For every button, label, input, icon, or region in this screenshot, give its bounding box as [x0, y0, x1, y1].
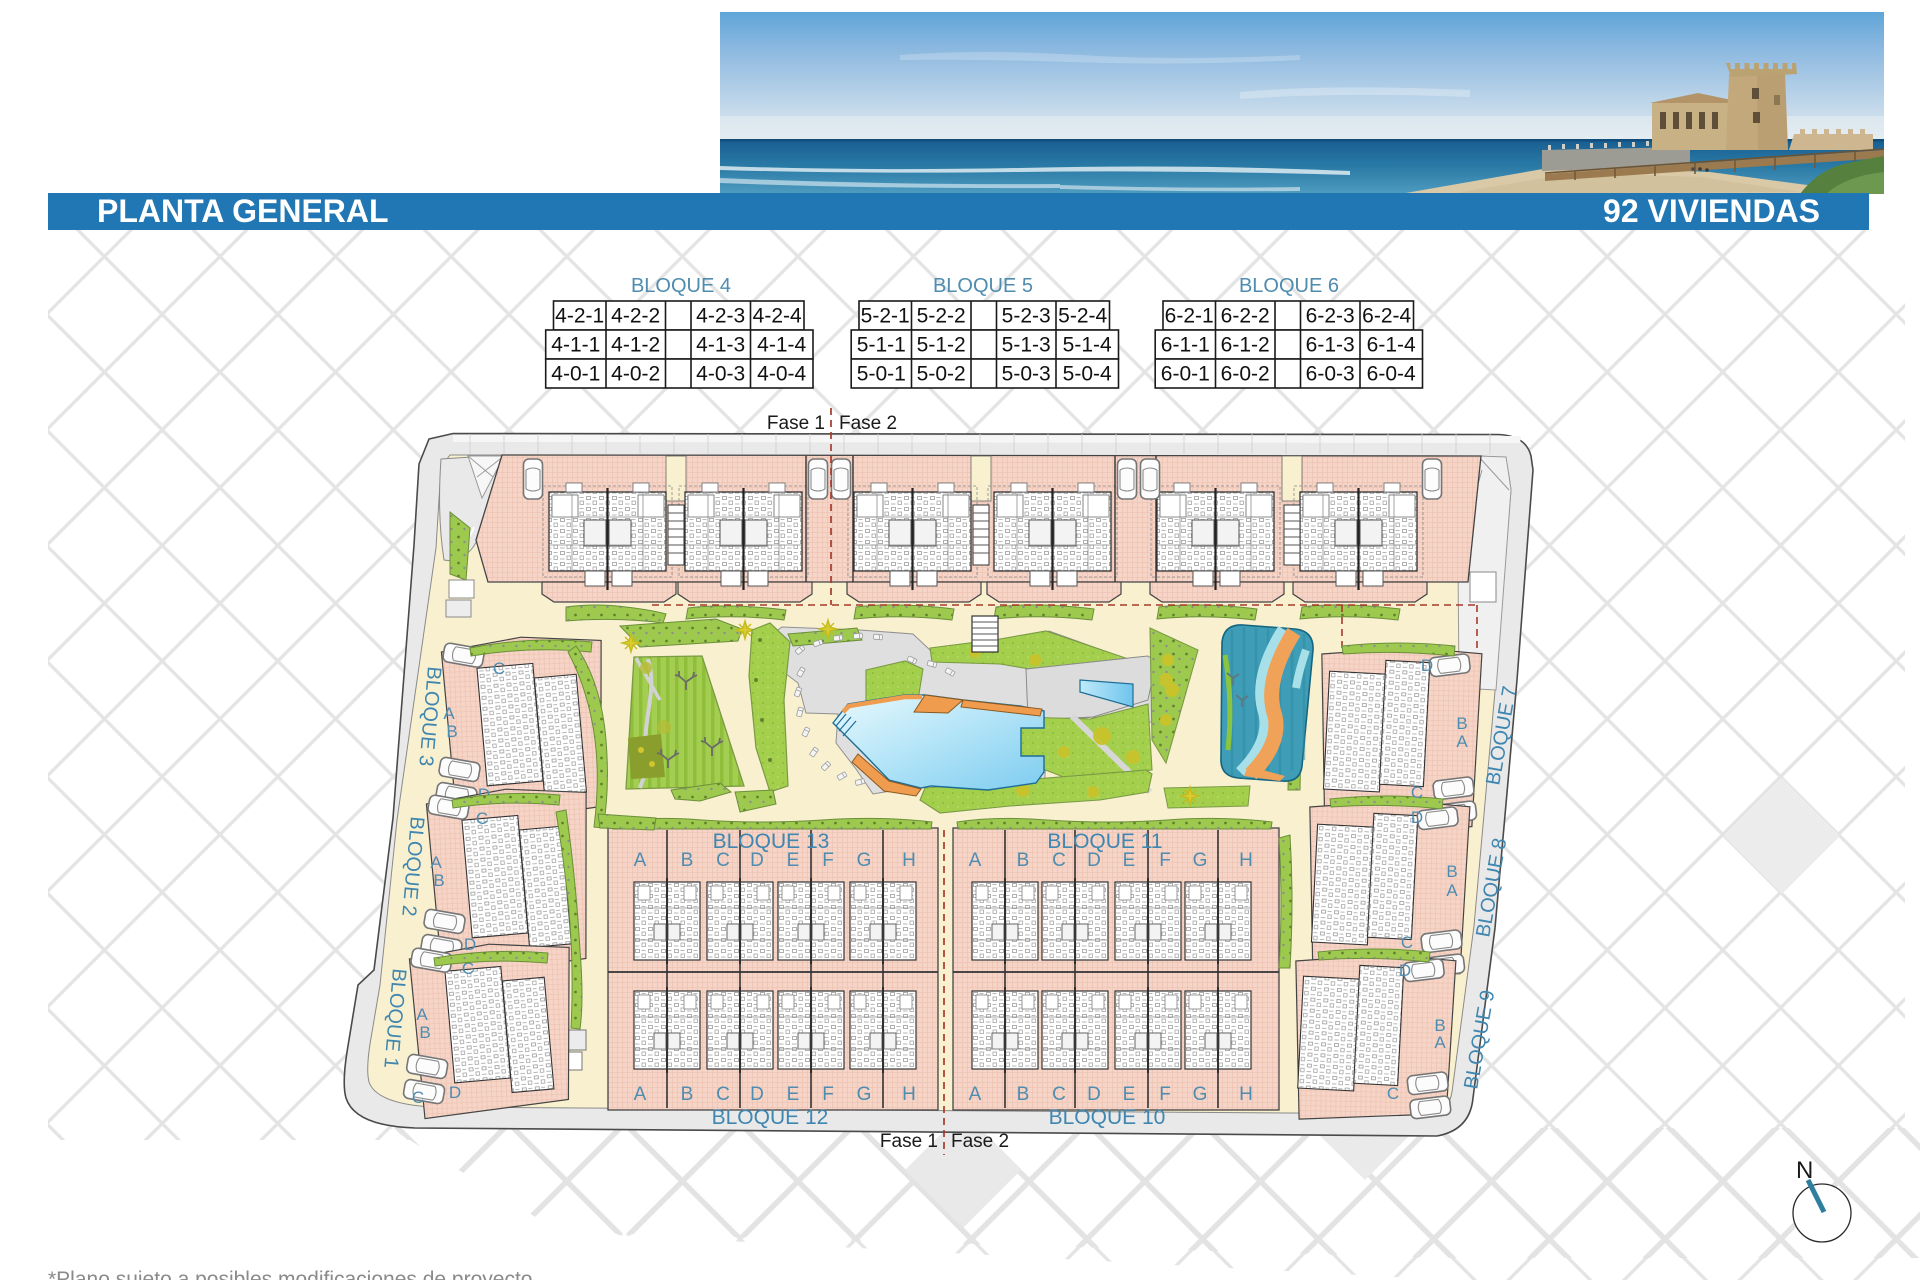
svg-text:C: C: [1052, 1084, 1066, 1105]
svg-text:BLOQUE 12: BLOQUE 12: [712, 1106, 829, 1129]
svg-text:5-1-1: 5-1-1: [857, 334, 906, 357]
svg-text:G: G: [1193, 850, 1208, 871]
svg-text:4-2-4: 4-2-4: [753, 305, 802, 328]
svg-text:92 VIVIENDAS: 92 VIVIENDAS: [1603, 193, 1820, 229]
svg-text:BLOQUE 6: BLOQUE 6: [1239, 275, 1339, 297]
svg-text:5-2-1: 5-2-1: [861, 305, 910, 328]
svg-text:B: B: [446, 722, 457, 741]
svg-text:H: H: [1239, 850, 1253, 871]
svg-text:F: F: [1159, 1084, 1171, 1105]
svg-text:H: H: [902, 850, 916, 871]
svg-text:5-0-2: 5-0-2: [917, 363, 966, 386]
svg-text:4-2-2: 4-2-2: [611, 305, 660, 328]
svg-text:A: A: [634, 850, 647, 871]
svg-text:6-1-3: 6-1-3: [1306, 334, 1355, 357]
svg-text:6-0-2: 6-0-2: [1221, 363, 1270, 386]
svg-text:D: D: [1411, 808, 1423, 827]
svg-text:D: D: [449, 1083, 461, 1102]
svg-text:A: A: [1434, 1033, 1446, 1052]
svg-text:5-0-3: 5-0-3: [1002, 363, 1051, 386]
svg-text:4-1-4: 4-1-4: [757, 334, 806, 357]
svg-text:A: A: [416, 1005, 428, 1024]
svg-text:B: B: [1017, 1084, 1030, 1105]
svg-text:5-0-1: 5-0-1: [857, 363, 906, 386]
svg-text:5-2-4: 5-2-4: [1058, 305, 1107, 328]
svg-text:D: D: [464, 935, 476, 954]
svg-text:Fase 2: Fase 2: [951, 1131, 1009, 1152]
svg-text:B: B: [681, 1084, 694, 1105]
svg-text:A: A: [1446, 881, 1458, 900]
svg-text:6-2-3: 6-2-3: [1306, 305, 1355, 328]
svg-text:6-0-1: 6-0-1: [1161, 363, 1210, 386]
svg-text:C: C: [1411, 783, 1423, 802]
svg-text:B: B: [1446, 862, 1457, 881]
svg-text:A: A: [969, 850, 982, 871]
svg-text:6-0-3: 6-0-3: [1306, 363, 1355, 386]
svg-text:4-2-3: 4-2-3: [696, 305, 745, 328]
svg-text:E: E: [787, 850, 800, 871]
svg-text:C: C: [493, 659, 505, 678]
svg-text:BLOQUE 10: BLOQUE 10: [1049, 1106, 1166, 1129]
svg-text:5-1-4: 5-1-4: [1063, 334, 1112, 357]
svg-text:C: C: [1401, 933, 1413, 952]
svg-text:B: B: [433, 871, 444, 890]
svg-text:6-1-2: 6-1-2: [1221, 334, 1270, 357]
svg-text:4-2-1: 4-2-1: [555, 305, 604, 328]
svg-text:H: H: [1239, 1084, 1253, 1105]
svg-text:F: F: [822, 1084, 834, 1105]
svg-text:G: G: [1193, 1084, 1208, 1105]
svg-text:H: H: [902, 1084, 916, 1105]
svg-text:F: F: [822, 850, 834, 871]
svg-text:5-2-3: 5-2-3: [1002, 305, 1051, 328]
svg-text:E: E: [1123, 850, 1136, 871]
svg-text:B: B: [681, 850, 694, 871]
svg-text:BLOQUE 4: BLOQUE 4: [631, 275, 731, 297]
svg-text:4-0-3: 4-0-3: [696, 363, 745, 386]
svg-text:B: B: [419, 1023, 430, 1042]
svg-text:4-0-1: 4-0-1: [551, 363, 600, 386]
svg-text:6-2-4: 6-2-4: [1362, 305, 1411, 328]
svg-text:C: C: [1387, 1084, 1399, 1103]
svg-text:4-0-4: 4-0-4: [757, 363, 806, 386]
svg-text:C: C: [476, 809, 488, 828]
svg-text:5-1-2: 5-1-2: [917, 334, 966, 357]
svg-text:D: D: [1087, 1084, 1101, 1105]
svg-text:A: A: [430, 853, 442, 872]
svg-text:E: E: [1123, 1084, 1136, 1105]
svg-text:D: D: [1087, 850, 1101, 871]
svg-text:G: G: [857, 1084, 872, 1105]
svg-text:D: D: [1399, 961, 1411, 980]
svg-text:D: D: [1421, 656, 1433, 675]
svg-text:Fase 1: Fase 1: [880, 1131, 938, 1152]
svg-text:B: B: [1017, 850, 1030, 871]
svg-text:Fase 2: Fase 2: [839, 413, 897, 434]
svg-text:6-0-4: 6-0-4: [1367, 363, 1416, 386]
svg-text:BLOQUE 5: BLOQUE 5: [933, 275, 1033, 297]
svg-text:N: N: [1796, 1157, 1813, 1184]
svg-text:E: E: [787, 1084, 800, 1105]
svg-text:4-1-1: 4-1-1: [551, 334, 600, 357]
svg-text:5-0-4: 5-0-4: [1063, 363, 1112, 386]
svg-text:A: A: [1456, 732, 1468, 751]
svg-text:F: F: [1159, 850, 1171, 871]
svg-text:C: C: [412, 1088, 424, 1107]
svg-text:B: B: [1456, 714, 1467, 733]
svg-text:D: D: [750, 850, 764, 871]
svg-text:4-1-2: 4-1-2: [611, 334, 660, 357]
svg-text:6-2-2: 6-2-2: [1221, 305, 1270, 328]
svg-text:D: D: [750, 1084, 764, 1105]
svg-text:BLOQUE 13: BLOQUE 13: [713, 830, 830, 853]
svg-text:6-1-4: 6-1-4: [1367, 334, 1416, 357]
svg-text:Fase 1: Fase 1: [767, 413, 825, 434]
svg-text:PLANTA GENERAL: PLANTA GENERAL: [97, 193, 389, 229]
svg-text:BLOQUE 11: BLOQUE 11: [1047, 830, 1162, 853]
svg-text:4-0-2: 4-0-2: [611, 363, 660, 386]
svg-text:5-2-2: 5-2-2: [917, 305, 966, 328]
svg-text:5-1-3: 5-1-3: [1002, 334, 1051, 357]
svg-text:C: C: [1052, 850, 1066, 871]
svg-text:4-1-3: 4-1-3: [696, 334, 745, 357]
svg-text:G: G: [857, 850, 872, 871]
svg-text:*Plano sujeto a posibles modif: *Plano sujeto a posibles modificaciones …: [48, 1268, 532, 1280]
svg-text:A: A: [443, 704, 455, 723]
svg-text:6-1-1: 6-1-1: [1161, 334, 1210, 357]
svg-text:C: C: [716, 1084, 730, 1105]
svg-text:C: C: [716, 850, 730, 871]
svg-text:A: A: [634, 1084, 647, 1105]
svg-text:6-2-1: 6-2-1: [1165, 305, 1214, 328]
svg-text:A: A: [969, 1084, 982, 1105]
